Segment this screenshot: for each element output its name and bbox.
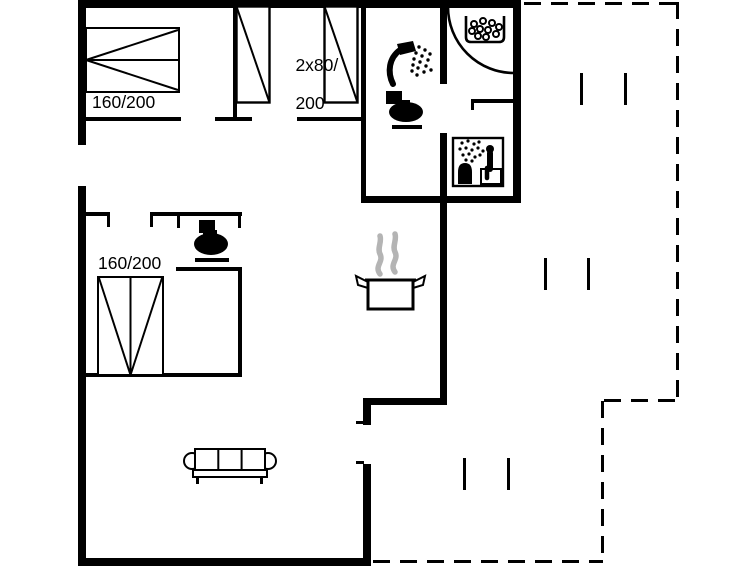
wall-bath-south	[361, 196, 521, 203]
door-jamb	[238, 216, 241, 228]
wall-living-east-lower	[363, 464, 371, 565]
terrace-outline-bottom	[373, 560, 603, 563]
terrace-outline-top	[524, 2, 679, 5]
door-jamb	[356, 421, 364, 424]
bed-size-label: 160/200	[98, 254, 161, 273]
door-jamb	[107, 216, 110, 227]
steam-pot-icon	[352, 232, 428, 312]
wall-bedroom2-east	[238, 267, 242, 377]
window-marker	[587, 258, 590, 290]
bed-size-line: 200	[295, 93, 324, 113]
window-marker	[580, 73, 583, 105]
wall-kitchen-south	[363, 398, 447, 405]
bed-size-label: 160/200	[92, 93, 155, 112]
floor-plan: 160/200 2x80/ 200 160/200	[0, 0, 755, 566]
wall-hall-north-a	[83, 117, 181, 121]
shower-head-icon	[386, 41, 434, 86]
pebble-basin-icon	[463, 16, 507, 46]
window-marker	[463, 458, 466, 490]
terrace-outline-step	[604, 399, 676, 402]
window-marker	[507, 458, 510, 490]
wall-bottom	[78, 558, 371, 566]
bed-size-line: 2x80/	[295, 55, 338, 75]
wall-hall-bath	[361, 5, 366, 196]
terrace-outline-right	[676, 2, 679, 402]
door-jamb	[356, 461, 364, 464]
bed-size-label: 2x80/ 200	[276, 37, 338, 132]
window-marker	[544, 258, 547, 290]
wall-wc-niche-south	[176, 267, 242, 271]
double-bed-icon	[97, 276, 164, 376]
wall-kitchen-east	[440, 133, 447, 405]
single-bed-icon	[235, 5, 271, 104]
toilet-icon	[384, 88, 426, 130]
door-jamb	[471, 99, 474, 110]
sauna-icon	[452, 137, 504, 187]
door-jamb	[150, 216, 153, 227]
toilet-icon	[191, 220, 233, 262]
window-marker	[624, 73, 627, 105]
wall-sauna-stub	[473, 99, 513, 103]
double-bed-icon	[85, 27, 180, 93]
wall-bath-west-upper	[440, 0, 447, 84]
sofa-icon	[183, 444, 277, 486]
wall-bedroom2-north-b	[150, 212, 242, 216]
terrace-outline-right-lower	[601, 401, 604, 562]
door-jamb	[177, 216, 180, 228]
